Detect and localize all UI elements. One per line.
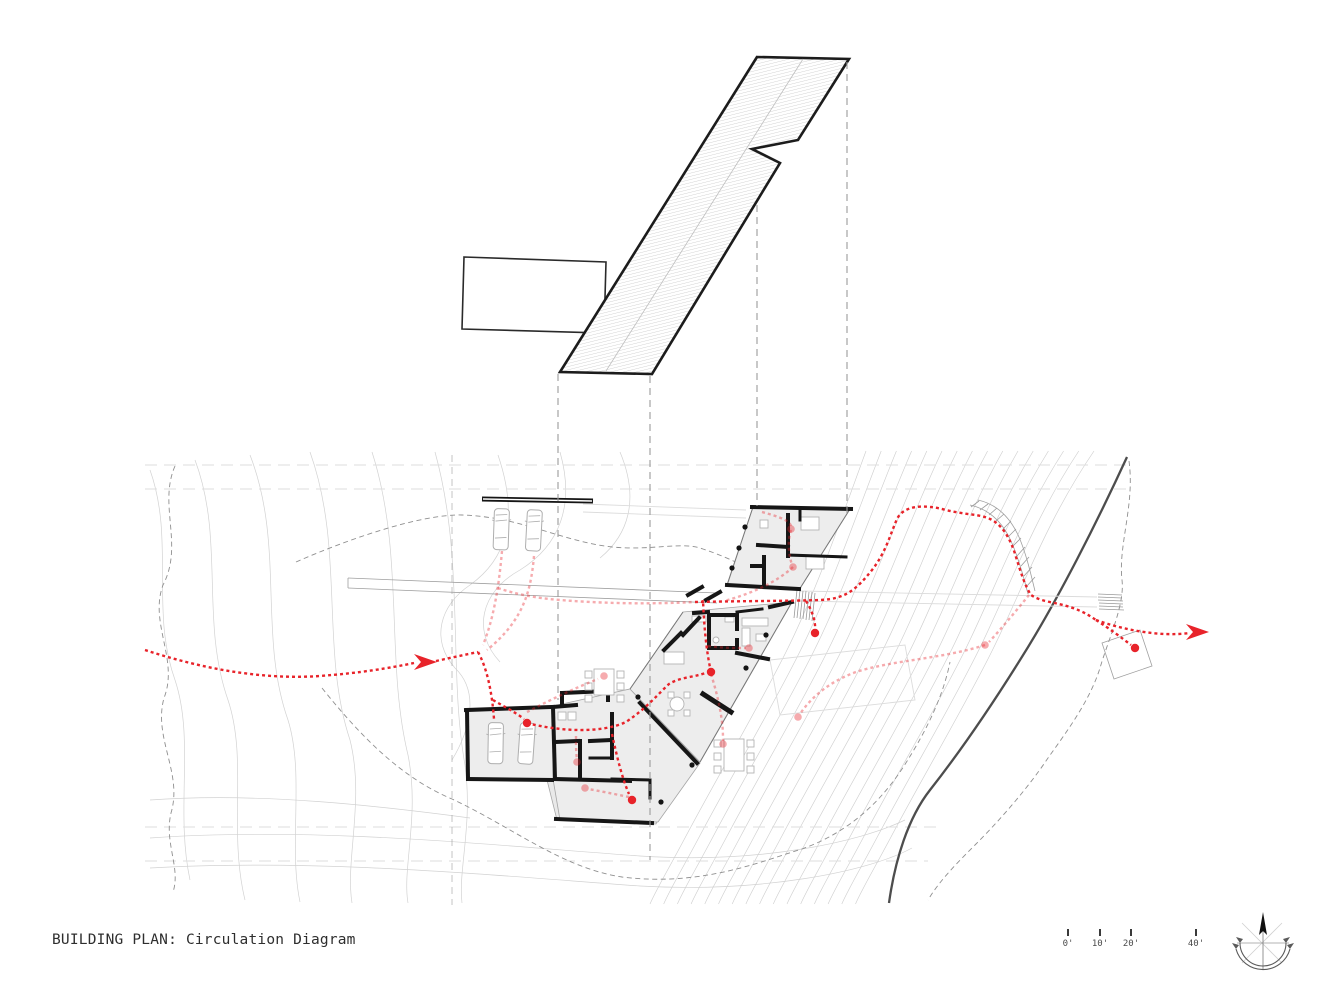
scale-tick-1: 10' [1087, 929, 1113, 949]
platform-deck [1102, 630, 1152, 679]
scale-bar: 0' 10' 20' 40' [1060, 929, 1230, 965]
drawing-sheet: BUILDING PLAN: Circulation Diagram 0' 10… [0, 0, 1340, 1004]
north-arrow-icon [1230, 906, 1296, 982]
scale-tick-2: 20' [1118, 929, 1144, 949]
carport-cars [491, 508, 544, 551]
drawing-title: BUILDING PLAN: Circulation Diagram [52, 932, 356, 948]
scale-tick-label: 40' [1183, 939, 1209, 949]
scale-tick-label: 0' [1055, 939, 1081, 949]
site-plan-drawing [0, 0, 1340, 1004]
scale-tick-mark [1195, 929, 1197, 936]
roof-wing [462, 257, 606, 333]
scale-tick-mark [1099, 929, 1101, 936]
hillside-stairs [970, 500, 1035, 594]
scale-tick-mark [1067, 929, 1069, 936]
carport [482, 499, 593, 551]
scale-tick-label: 10' [1087, 939, 1113, 949]
entry-arrow [414, 654, 437, 670]
exit-arrow [1186, 624, 1209, 640]
scale-tick-3: 40' [1183, 929, 1209, 949]
roof-ridge-line [606, 59, 803, 371]
bedroom-wing [688, 507, 851, 600]
scale-tick-0: 0' [1055, 929, 1081, 949]
scale-tick-label: 20' [1118, 939, 1144, 949]
roof-plan [462, 57, 849, 374]
scale-tick-mark [1130, 929, 1132, 936]
